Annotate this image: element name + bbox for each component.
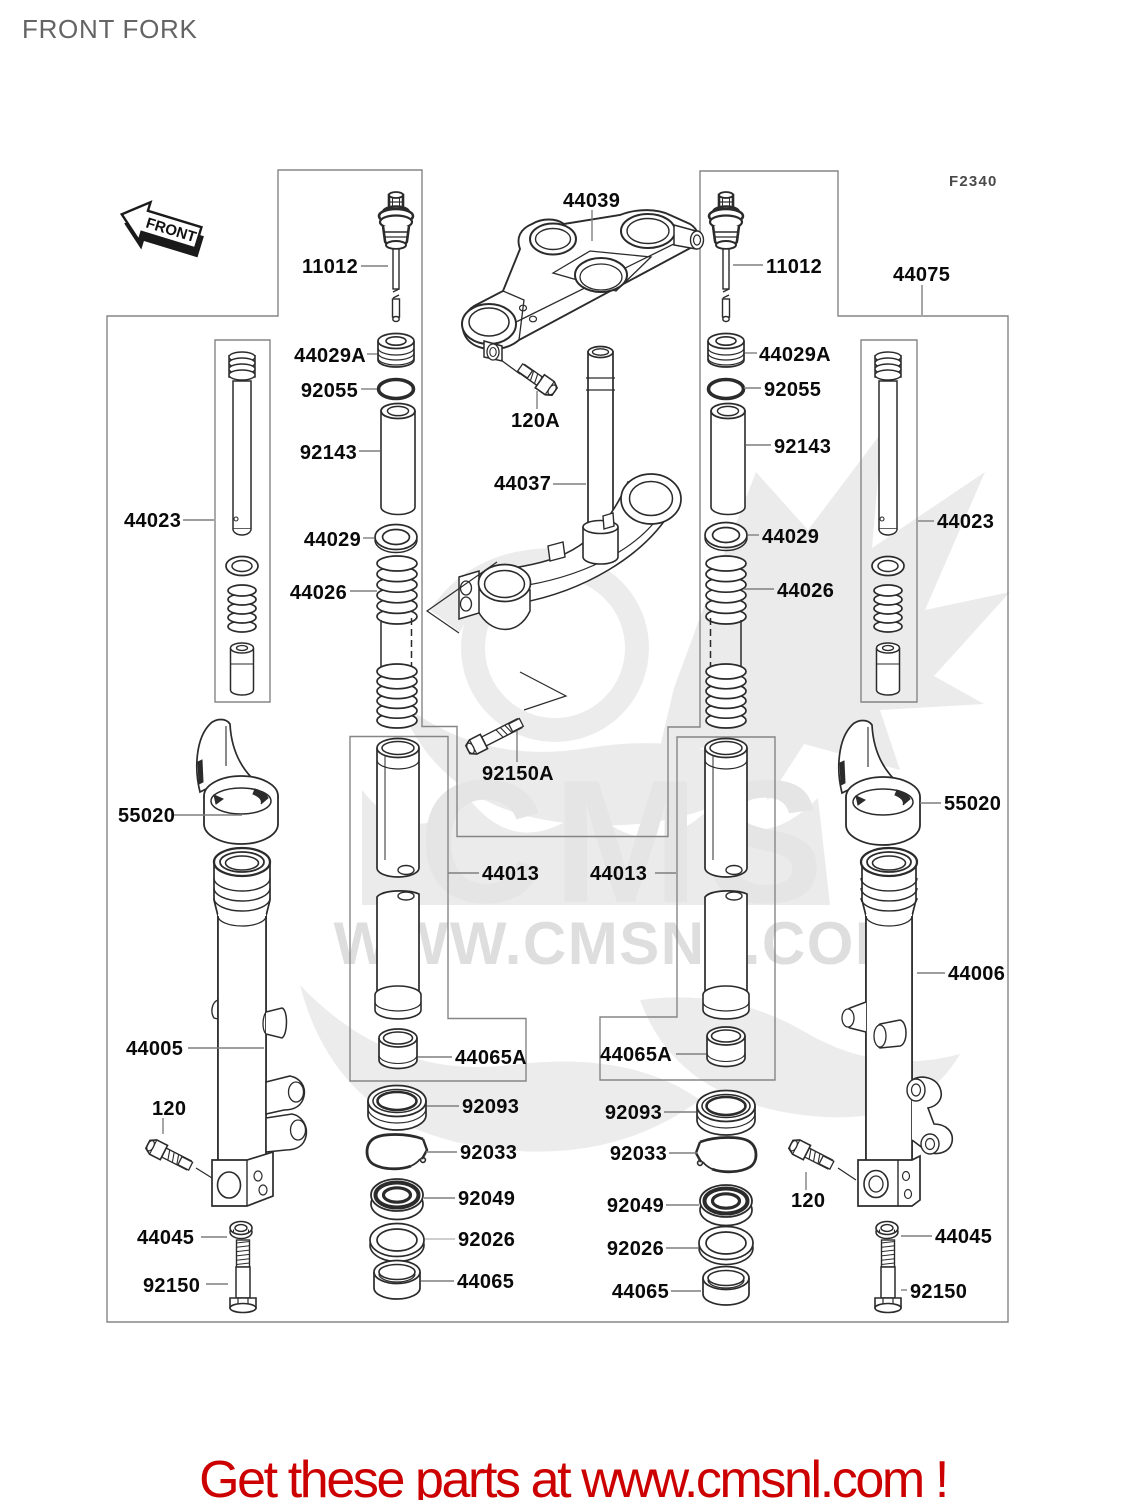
svg-text:92026: 92026 bbox=[607, 1238, 664, 1260]
svg-text:92150: 92150 bbox=[143, 1275, 200, 1297]
svg-text:44045: 44045 bbox=[137, 1227, 194, 1249]
svg-text:44065: 44065 bbox=[457, 1271, 514, 1293]
svg-text:44029: 44029 bbox=[304, 529, 361, 551]
svg-text:44065A: 44065A bbox=[600, 1044, 672, 1066]
svg-text:44065A: 44065A bbox=[455, 1047, 527, 1069]
svg-text:44075: 44075 bbox=[893, 264, 950, 286]
svg-text:92033: 92033 bbox=[610, 1143, 667, 1165]
svg-text:44023: 44023 bbox=[124, 510, 181, 532]
svg-text:44065: 44065 bbox=[612, 1281, 669, 1303]
svg-text:92143: 92143 bbox=[300, 442, 357, 464]
svg-text:11012: 11012 bbox=[766, 256, 822, 278]
svg-text:44045: 44045 bbox=[935, 1226, 992, 1248]
svg-text:92150: 92150 bbox=[910, 1281, 967, 1303]
svg-text:44029: 44029 bbox=[762, 526, 819, 548]
svg-text:120: 120 bbox=[791, 1190, 825, 1212]
svg-text:92093: 92093 bbox=[462, 1096, 519, 1118]
svg-text:120A: 120A bbox=[511, 410, 560, 432]
svg-text:44037: 44037 bbox=[494, 473, 551, 495]
svg-text:92055: 92055 bbox=[301, 380, 358, 402]
svg-text:44005: 44005 bbox=[126, 1038, 183, 1060]
svg-text:44026: 44026 bbox=[290, 582, 347, 604]
svg-text:92049: 92049 bbox=[458, 1188, 515, 1210]
svg-text:92150A: 92150A bbox=[482, 763, 554, 785]
svg-text:11012: 11012 bbox=[302, 256, 358, 278]
svg-text:92033: 92033 bbox=[460, 1142, 517, 1164]
svg-text:92049: 92049 bbox=[607, 1195, 664, 1217]
svg-text:44026: 44026 bbox=[777, 580, 834, 602]
svg-text:44039: 44039 bbox=[563, 190, 620, 212]
svg-text:92055: 92055 bbox=[764, 379, 821, 401]
svg-text:Get these parts at www.cmsnl.c: Get these parts at www.cmsnl.com ! bbox=[199, 1451, 947, 1500]
svg-text:55020: 55020 bbox=[944, 793, 1001, 815]
svg-text:44013: 44013 bbox=[482, 863, 539, 885]
svg-text:44029A: 44029A bbox=[294, 345, 366, 367]
svg-text:92093: 92093 bbox=[605, 1102, 662, 1124]
svg-text:FRONT FORK: FRONT FORK bbox=[22, 14, 198, 44]
svg-text:120: 120 bbox=[152, 1098, 186, 1120]
svg-text:44029A: 44029A bbox=[759, 344, 831, 366]
svg-text:44023: 44023 bbox=[937, 511, 994, 533]
svg-text:92143: 92143 bbox=[774, 436, 831, 458]
svg-text:F2340: F2340 bbox=[949, 173, 998, 190]
svg-text:44013: 44013 bbox=[590, 863, 647, 885]
svg-text:55020: 55020 bbox=[118, 805, 175, 827]
svg-text:92026: 92026 bbox=[458, 1229, 515, 1251]
svg-text:44006: 44006 bbox=[948, 963, 1005, 985]
